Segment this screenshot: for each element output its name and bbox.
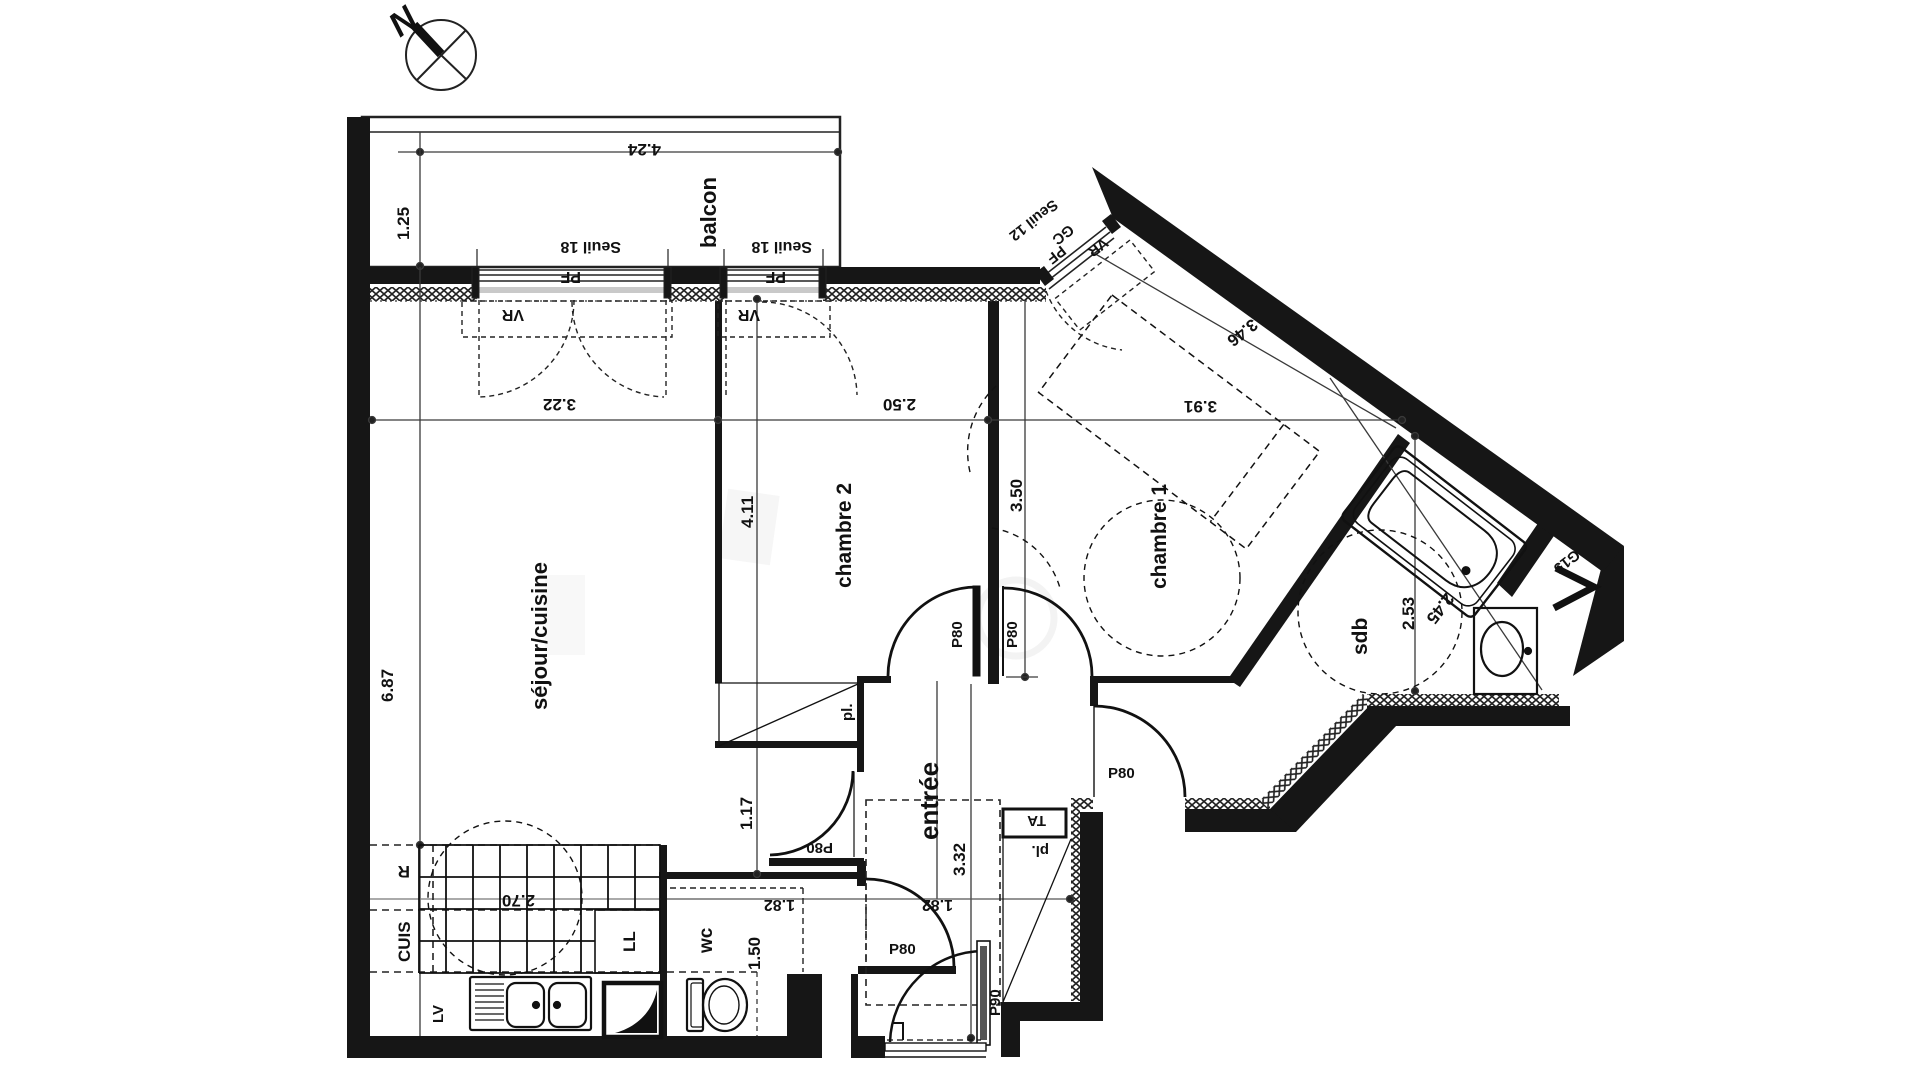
- svg-text:1.17: 1.17: [737, 797, 756, 830]
- svg-text:3.50: 3.50: [1007, 479, 1026, 512]
- svg-text:6.87: 6.87: [378, 669, 397, 702]
- svg-text:PF: PF: [765, 268, 786, 285]
- svg-text:R: R: [398, 862, 410, 881]
- svg-text:TA: TA: [1027, 812, 1046, 829]
- svg-text:P80: P80: [949, 621, 966, 648]
- svg-text:3.91: 3.91: [1184, 397, 1217, 416]
- svg-text:entrée: entrée: [914, 762, 944, 840]
- svg-text:VR: VR: [501, 306, 524, 323]
- svg-text:wc: wc: [696, 927, 717, 954]
- svg-text:P80: P80: [889, 941, 916, 958]
- svg-text:1.25: 1.25: [394, 207, 413, 240]
- svg-text:1.50: 1.50: [745, 937, 764, 970]
- svg-text:séjour/cuisine: séjour/cuisine: [527, 562, 552, 710]
- svg-text:P80: P80: [806, 839, 833, 856]
- svg-text:chambre 2: chambre 2: [833, 483, 856, 588]
- svg-text:PF: PF: [560, 268, 581, 285]
- svg-text:3.22: 3.22: [543, 395, 576, 414]
- svg-text:VR: VR: [737, 306, 760, 323]
- svg-text:LV: LV: [430, 1005, 447, 1023]
- svg-text:2.53: 2.53: [1399, 597, 1418, 630]
- svg-text:chambre 1: chambre 1: [1148, 484, 1171, 589]
- svg-text:2.50: 2.50: [883, 395, 916, 414]
- svg-text:Seuil 18: Seuil 18: [560, 238, 621, 255]
- svg-text:LL: LL: [620, 931, 639, 952]
- svg-text:pl.: pl.: [839, 704, 856, 722]
- svg-text:3.32: 3.32: [950, 843, 969, 876]
- svg-text:P80: P80: [1004, 621, 1021, 648]
- svg-text:4.24: 4.24: [627, 140, 661, 159]
- svg-text:P80: P80: [1108, 765, 1135, 782]
- svg-text:1.82: 1.82: [764, 896, 795, 913]
- svg-text:1.82: 1.82: [922, 896, 953, 913]
- svg-text:Seuil 18: Seuil 18: [751, 238, 812, 255]
- svg-text:2.70: 2.70: [502, 891, 535, 910]
- svg-text:pl.: pl.: [1032, 842, 1050, 859]
- svg-text:P90: P90: [987, 989, 1004, 1016]
- svg-text:sdb: sdb: [1349, 618, 1372, 655]
- svg-text:4.11: 4.11: [738, 496, 757, 528]
- svg-text:CUIS: CUIS: [395, 921, 414, 962]
- svg-text:balcon: balcon: [696, 177, 721, 248]
